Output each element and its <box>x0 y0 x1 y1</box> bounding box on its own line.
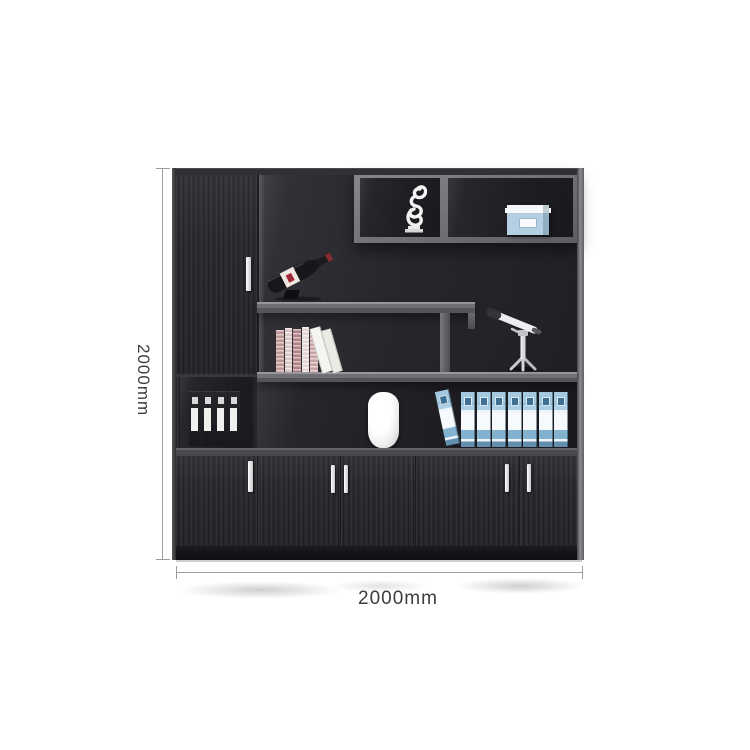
book-row <box>276 326 354 372</box>
door-handle <box>344 465 348 493</box>
left-tall-door-handle <box>246 257 251 291</box>
lower-shelf <box>257 372 578 382</box>
blue-binders <box>444 389 568 448</box>
blue-binder <box>492 392 506 447</box>
blue-binder <box>477 392 491 447</box>
storage-box-label <box>519 218 537 228</box>
floor-shadow-left <box>178 581 343 599</box>
door-seam <box>340 456 342 546</box>
top-display-box <box>354 172 579 243</box>
book <box>293 329 301 372</box>
blue-binder <box>523 392 537 447</box>
plinth <box>174 546 582 560</box>
wine-bottle <box>262 248 342 302</box>
upper-shelf-end-cap <box>468 313 475 329</box>
storage-box-side-shade <box>543 205 549 235</box>
abstract-sculpture <box>396 182 431 235</box>
door-handle <box>248 461 253 492</box>
width-dimension-left-tick <box>176 566 177 579</box>
left-door-bottom-trim <box>176 374 257 377</box>
blue-binder <box>554 392 568 447</box>
width-dimension-right-tick <box>582 566 583 579</box>
cabinet-left-edge <box>172 168 176 560</box>
cabinet-right-edge <box>577 168 584 560</box>
book <box>285 328 292 372</box>
white-vase <box>368 392 399 448</box>
product-image-canvas: 2000mm 2000mm <box>0 0 750 750</box>
book <box>276 330 284 372</box>
door-seam <box>519 456 521 546</box>
upper-shelf <box>257 302 475 313</box>
black-binders <box>189 389 250 446</box>
door-handle <box>527 464 531 492</box>
counter-edge <box>176 448 580 456</box>
telescope-model <box>482 300 554 372</box>
door-seam <box>257 456 259 546</box>
height-dimension-line <box>162 168 163 560</box>
blue-storage-box <box>507 205 549 235</box>
black-binder <box>228 391 240 446</box>
floor-shadow-right <box>455 578 585 594</box>
bottom-doors <box>176 456 580 546</box>
book <box>302 327 309 372</box>
cabinet <box>172 168 584 560</box>
vertical-divider <box>440 313 450 372</box>
door-seam <box>415 456 417 546</box>
height-dimension-bottom-tick <box>156 559 170 560</box>
black-binder <box>189 391 201 446</box>
blue-binder <box>539 392 553 447</box>
black-binder <box>215 391 227 446</box>
door-handle <box>505 464 509 492</box>
black-binder <box>202 391 214 446</box>
floor-line <box>176 560 582 562</box>
width-dimension-label: 2000mm <box>352 588 444 610</box>
blue-binder <box>508 392 522 447</box>
width-dimension-line <box>176 572 583 573</box>
cabinet-top-rail <box>172 168 584 175</box>
blue-binder <box>461 392 475 447</box>
height-dimension-top-tick <box>156 168 170 169</box>
height-dimension-label: 2000mm <box>133 344 153 416</box>
door-handle <box>331 465 335 493</box>
